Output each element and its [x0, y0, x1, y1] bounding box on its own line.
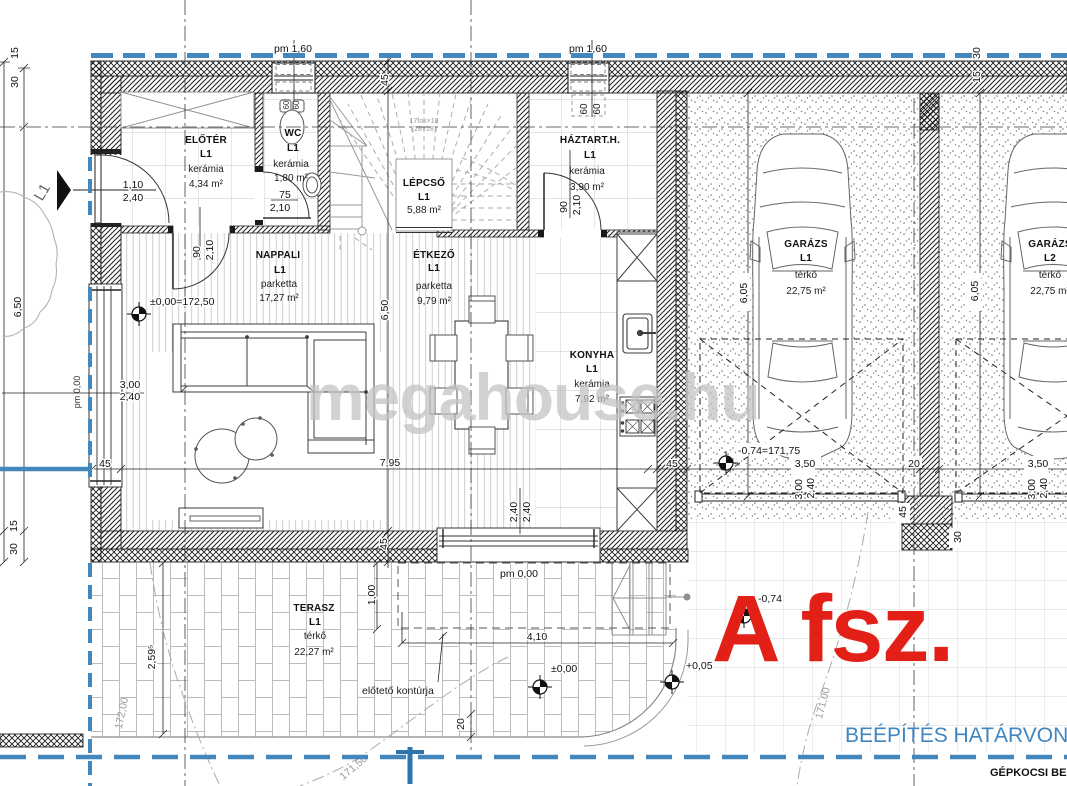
svg-text:4,34 m²: 4,34 m²	[189, 179, 224, 190]
svg-text:L1: L1	[274, 265, 286, 276]
svg-text:60: 60	[579, 103, 590, 115]
svg-text:20: 20	[908, 458, 920, 470]
svg-text:30: 30	[971, 47, 983, 59]
svg-text:30: 30	[9, 76, 21, 88]
svg-text:térkő: térkő	[795, 270, 818, 281]
svg-text:2,10: 2,10	[270, 202, 291, 214]
svg-text:60: 60	[282, 100, 291, 109]
svg-text:15: 15	[8, 520, 20, 532]
svg-text:6,50: 6,50	[379, 300, 391, 321]
svg-text:L1: L1	[418, 192, 430, 203]
svg-text:45: 45	[378, 538, 390, 550]
svg-text:30: 30	[952, 531, 964, 543]
svg-text:3,00: 3,00	[1026, 479, 1038, 500]
svg-text:45: 45	[666, 458, 678, 470]
svg-text:±0,00: ±0,00	[551, 663, 577, 675]
svg-text:22,27 m²: 22,27 m²	[294, 647, 334, 658]
svg-text:-0,74=171,75: -0,74=171,75	[738, 445, 800, 457]
svg-text:2,10: 2,10	[204, 240, 216, 261]
svg-text:3,50: 3,50	[1028, 458, 1049, 470]
svg-text:45: 45	[897, 506, 909, 518]
svg-text:pm 0,00: pm 0,00	[72, 376, 82, 409]
svg-text:3,00: 3,00	[120, 379, 141, 391]
svg-text:ÉTKEZŐ: ÉTKEZŐ	[413, 248, 455, 261]
svg-text:±0,00=172,50: ±0,00=172,50	[150, 296, 215, 308]
svg-text:60: 60	[292, 100, 301, 109]
svg-text:+0,05: +0,05	[686, 660, 713, 672]
svg-text:1,80 m²: 1,80 m²	[274, 173, 309, 184]
svg-text:HÁZTART.H.: HÁZTART.H.	[560, 133, 620, 146]
svg-text:GÉPKOCSI BEÁLLÓ: GÉPKOCSI BEÁLLÓ	[990, 766, 1067, 779]
svg-text:60: 60	[592, 103, 603, 115]
svg-text:LÉPCSŐ: LÉPCSŐ	[403, 176, 445, 189]
svg-text:90: 90	[558, 201, 570, 213]
svg-text:22,75 m²: 22,75 m²	[1030, 286, 1067, 297]
svg-text:3,00: 3,00	[793, 479, 805, 500]
svg-text:L1: L1	[309, 617, 321, 628]
svg-text:5,88 m²: 5,88 m²	[407, 205, 442, 216]
svg-text:TERASZ: TERASZ	[293, 603, 334, 614]
svg-text:parketta: parketta	[416, 281, 453, 292]
svg-text:3,90 m²: 3,90 m²	[570, 182, 605, 193]
svg-text:ELŐTÉR: ELŐTÉR	[185, 133, 227, 146]
svg-text:L1: L1	[800, 253, 812, 264]
svg-text:2,40: 2,40	[805, 478, 817, 499]
svg-text:15: 15	[9, 47, 21, 59]
svg-text:2,59⁵: 2,59⁵	[146, 645, 158, 670]
svg-text:2,10: 2,10	[571, 195, 583, 216]
svg-text:90: 90	[191, 246, 203, 258]
svg-text:15: 15	[971, 71, 983, 83]
svg-text:GARÁZS: GARÁZS	[1028, 237, 1067, 250]
svg-text:6,05: 6,05	[738, 283, 750, 304]
svg-text:L1: L1	[584, 150, 596, 161]
svg-text:1,10: 1,10	[123, 179, 144, 191]
svg-text:3,50: 3,50	[795, 458, 816, 470]
svg-text:L1: L1	[287, 143, 299, 154]
svg-text:30: 30	[8, 543, 20, 555]
svg-text:17fok×18: 17fok×18	[410, 118, 439, 125]
svg-text:2,40: 2,40	[521, 502, 533, 523]
svg-text:pm 0,00: pm 0,00	[500, 568, 538, 580]
svg-text:2,40: 2,40	[123, 192, 144, 204]
svg-text:előtető kontúrja: előtető kontúrja	[362, 685, 434, 697]
svg-text:kerámia: kerámia	[188, 164, 224, 175]
svg-text:NAPPALI: NAPPALI	[256, 250, 301, 261]
svg-text:22,75 m²: 22,75 m²	[786, 286, 826, 297]
svg-text:17,27 m²: 17,27 m²	[259, 293, 299, 304]
svg-text:7,95: 7,95	[380, 457, 401, 469]
svg-text:2,40: 2,40	[1038, 478, 1050, 499]
svg-text:45: 45	[99, 458, 111, 470]
svg-text:6,50: 6,50	[12, 297, 24, 318]
svg-text:parketta: parketta	[261, 279, 298, 290]
svg-text:kerámia: kerámia	[569, 166, 605, 177]
svg-text:20: 20	[455, 718, 467, 730]
svg-text:megahouse.hu: megahouse.hu	[306, 360, 760, 434]
svg-text:2,40: 2,40	[508, 502, 520, 523]
svg-text:BEÉPÍTÉS HATÁRVONAL: BEÉPÍTÉS HATÁRVONAL	[845, 724, 1067, 747]
svg-text:L1: L1	[428, 263, 440, 274]
svg-text:45: 45	[379, 74, 391, 86]
svg-text:L1: L1	[200, 149, 212, 160]
svg-text:4,10: 4,10	[527, 631, 548, 643]
svg-text:9,79 m²: 9,79 m²	[417, 296, 452, 307]
svg-text:kerámia: kerámia	[273, 159, 309, 170]
svg-text:1,00: 1,00	[366, 585, 378, 606]
svg-text:WC: WC	[284, 128, 301, 139]
svg-text:A fsz.: A fsz.	[712, 576, 953, 682]
svg-text:GARÁZS: GARÁZS	[784, 237, 828, 250]
svg-text:2,40: 2,40	[120, 391, 141, 403]
svg-text:6,05: 6,05	[969, 281, 981, 302]
svg-text:75: 75	[279, 189, 291, 201]
svg-text:L2: L2	[1044, 253, 1056, 264]
svg-text:térkő: térkő	[304, 631, 327, 642]
svg-text:térkő: térkő	[1039, 270, 1062, 281]
